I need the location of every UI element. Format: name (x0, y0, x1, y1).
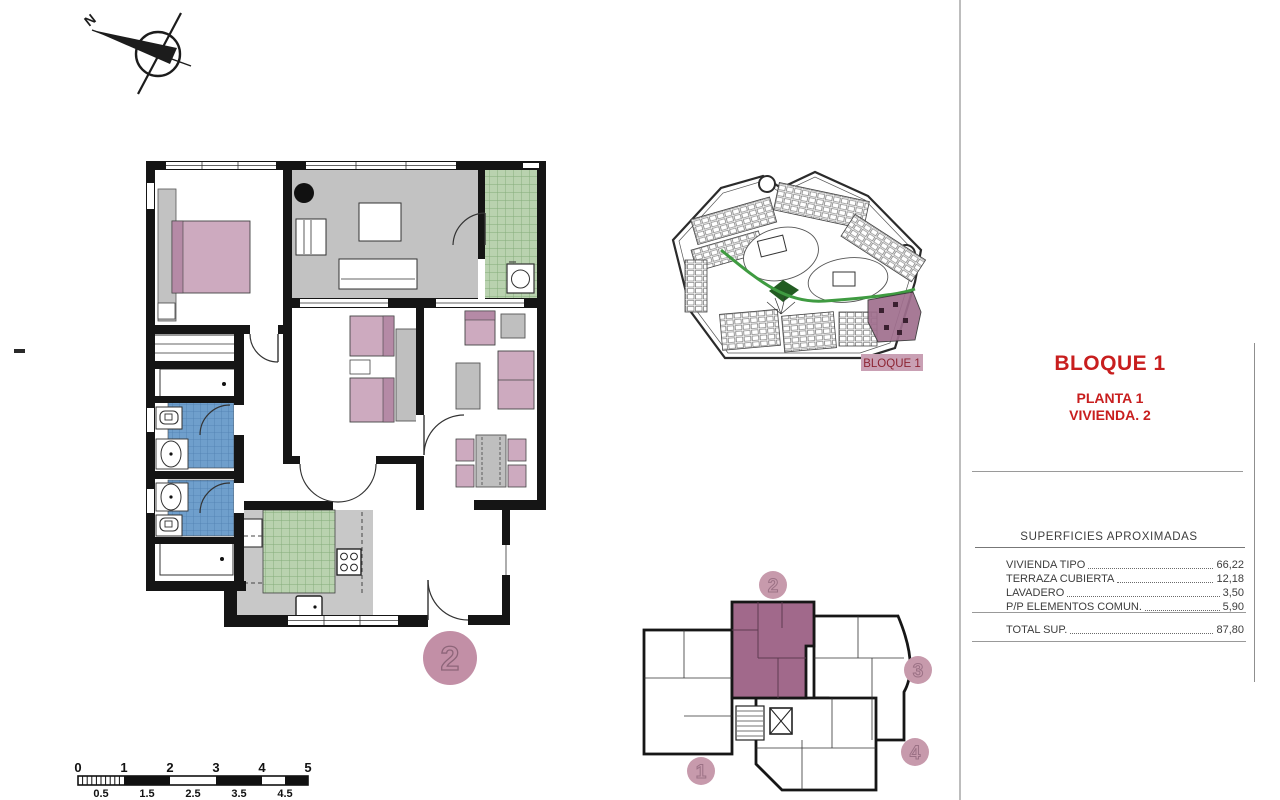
sheet-fold-mark (14, 349, 25, 353)
dining-table (476, 435, 506, 487)
svg-text:5: 5 (304, 760, 311, 775)
row-value: 12,18 (1216, 573, 1244, 585)
unit2-marker: 2 (768, 576, 779, 597)
unit-marker-number: 2 (441, 640, 460, 678)
row-label: VIVIENDA TIPO (1006, 559, 1085, 571)
title-block-rule (972, 471, 1243, 472)
table-rule-mid (972, 612, 1246, 613)
floor-plan: 2 (138, 153, 550, 698)
north-label: N (81, 11, 99, 30)
total-row: TOTAL SUP. 87,80 (1006, 622, 1244, 636)
site-plan: BLOQUE 1 (663, 162, 933, 376)
table (359, 203, 401, 241)
row-value: 3,50 (1223, 587, 1244, 599)
svg-text:3.5: 3.5 (231, 788, 246, 800)
plant (294, 183, 314, 203)
unit-marker: 2 (423, 631, 477, 685)
plan-sheet: N (0, 0, 1280, 800)
svg-text:0: 0 (74, 760, 81, 775)
sink (296, 596, 322, 618)
leader-dots (1067, 596, 1219, 597)
row-label: LAVADERO (1006, 587, 1064, 599)
svg-text:0.5: 0.5 (93, 788, 108, 800)
wardrobe (396, 329, 417, 421)
table-row: LAVADERO 3,50 (1006, 585, 1244, 599)
svg-text:4: 4 (258, 760, 266, 775)
north-arrow-icon: N (78, 6, 200, 100)
site-highlighted-block (868, 292, 921, 342)
leader-dots (1117, 582, 1213, 583)
table-row: VIVIENDA TIPO 66,22 (1006, 557, 1244, 571)
bedroom2-furniture (350, 316, 417, 422)
scale-minor-labels: 0.5 1.5 2.5 3.5 4.5 (93, 788, 292, 800)
svg-text:2: 2 (166, 760, 173, 775)
key-plan: 1 2 3 4 (632, 566, 938, 800)
svg-text:1: 1 (120, 760, 127, 775)
table-row: TERRAZA CUBIERTA 12,18 (1006, 571, 1244, 585)
svg-text:2.5: 2.5 (185, 788, 200, 800)
unit4-marker: 4 (910, 743, 921, 764)
unit3-marker: 3 (913, 661, 924, 682)
row-value: 66,22 (1216, 559, 1244, 571)
wardrobe (152, 335, 236, 363)
total-label: TOTAL SUP. (1006, 624, 1067, 636)
panel-divider (959, 0, 961, 800)
chair (456, 465, 474, 487)
total-value: 87,80 (1216, 624, 1244, 636)
block-title: BLOQUE 1 (965, 352, 1255, 376)
kitchen-floor (263, 510, 335, 593)
leader-dots (1070, 633, 1213, 634)
leader-dots (1145, 610, 1220, 611)
svg-text:4.5: 4.5 (277, 788, 292, 800)
floor-title: PLANTA 1 (965, 390, 1255, 406)
site-block-label: BLOQUE 1 (861, 354, 923, 371)
double-bed (172, 221, 250, 293)
scale-bar-strip (78, 776, 308, 785)
site-block-label-text: BLOQUE 1 (863, 358, 921, 370)
coffee-table (456, 363, 480, 409)
scale-major-labels: 0 1 2 3 4 5 (74, 760, 311, 775)
row-label: TERRAZA CUBIERTA (1006, 573, 1114, 585)
unit1-marker: 1 (696, 762, 707, 783)
bedroom1-furniture (158, 189, 250, 321)
table-rule-top (975, 547, 1245, 548)
chair (508, 439, 526, 461)
scale-bar: 0 1 2 3 4 5 0.5 1.5 2.5 3.5 4.5 (68, 760, 318, 800)
table-row: P/P ELEMENTOS COMUN. 5,90 (1006, 599, 1244, 613)
areas-table: VIVIENDA TIPO 66,22 TERRAZA CUBIERTA 12,… (1006, 557, 1244, 613)
bench (339, 259, 417, 289)
washing-machine (507, 262, 534, 293)
leader-dots (1088, 568, 1213, 569)
chair (508, 465, 526, 487)
living-furniture (456, 311, 534, 487)
unit-title: VIVIENDA. 2 (965, 407, 1255, 423)
key-plan-unit2 (732, 602, 814, 698)
chair (456, 439, 474, 461)
svg-text:3: 3 (212, 760, 219, 775)
areas-table-header: SUPERFICIES APROXIMADAS (972, 531, 1246, 543)
table-rule-bottom (972, 641, 1246, 642)
stove (337, 549, 361, 575)
svg-text:1.5: 1.5 (139, 788, 154, 800)
